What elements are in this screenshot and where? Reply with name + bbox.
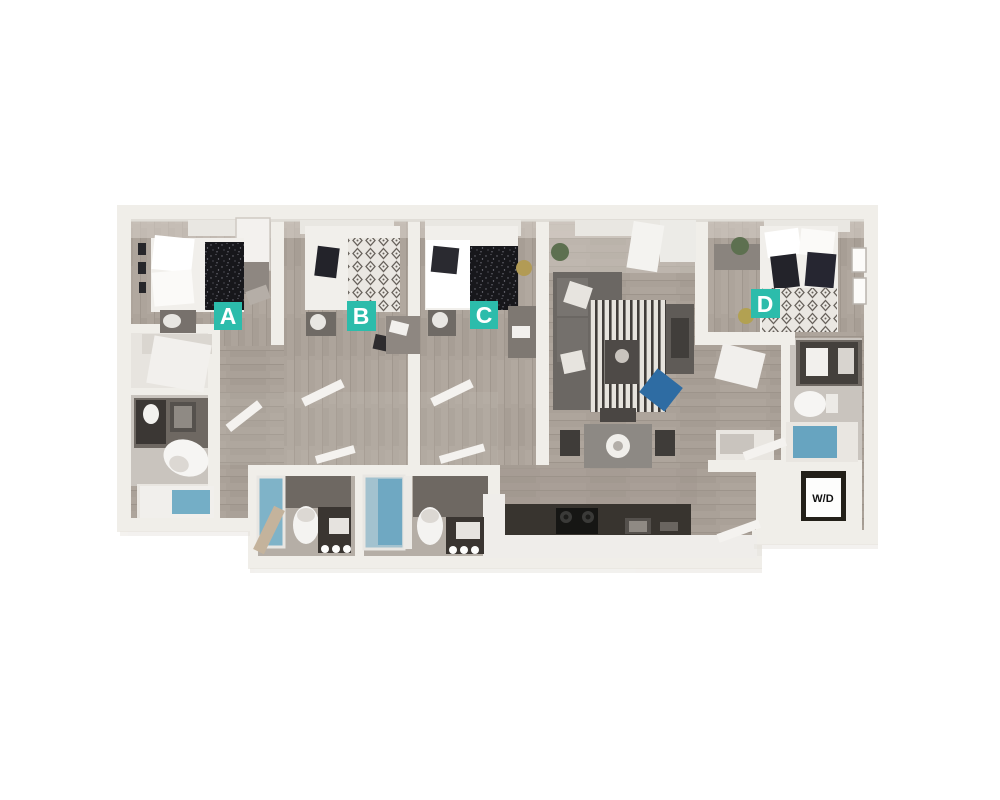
svg-text:C: C xyxy=(476,302,493,328)
svg-text:B: B xyxy=(353,303,370,329)
svg-text:D: D xyxy=(757,291,774,317)
svg-text:A: A xyxy=(220,303,237,329)
svg-text:W/D: W/D xyxy=(812,493,833,505)
